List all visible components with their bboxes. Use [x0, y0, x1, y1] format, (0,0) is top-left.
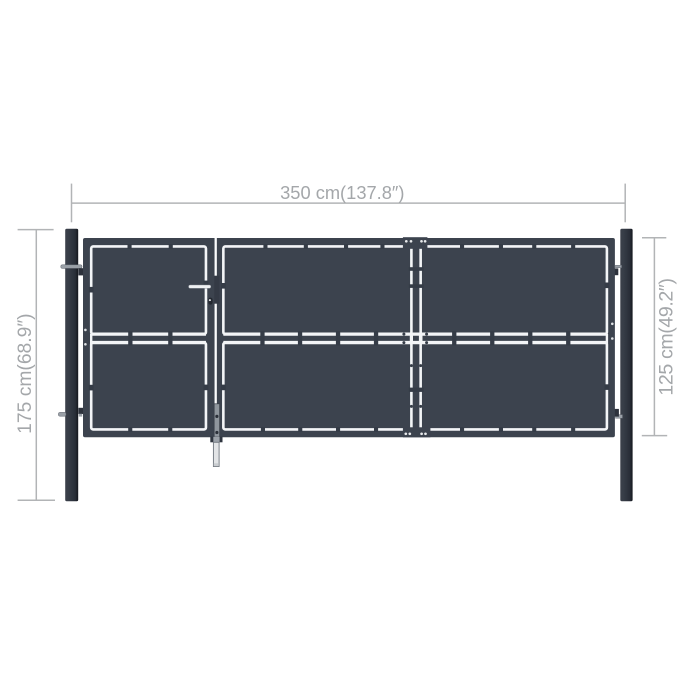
- svg-text:350 cm(137.8″): 350 cm(137.8″): [280, 182, 404, 203]
- svg-text:175 cm(68.9″): 175 cm(68.9″): [15, 313, 36, 433]
- svg-text:125 cm(49.2″): 125 cm(49.2″): [656, 278, 678, 395]
